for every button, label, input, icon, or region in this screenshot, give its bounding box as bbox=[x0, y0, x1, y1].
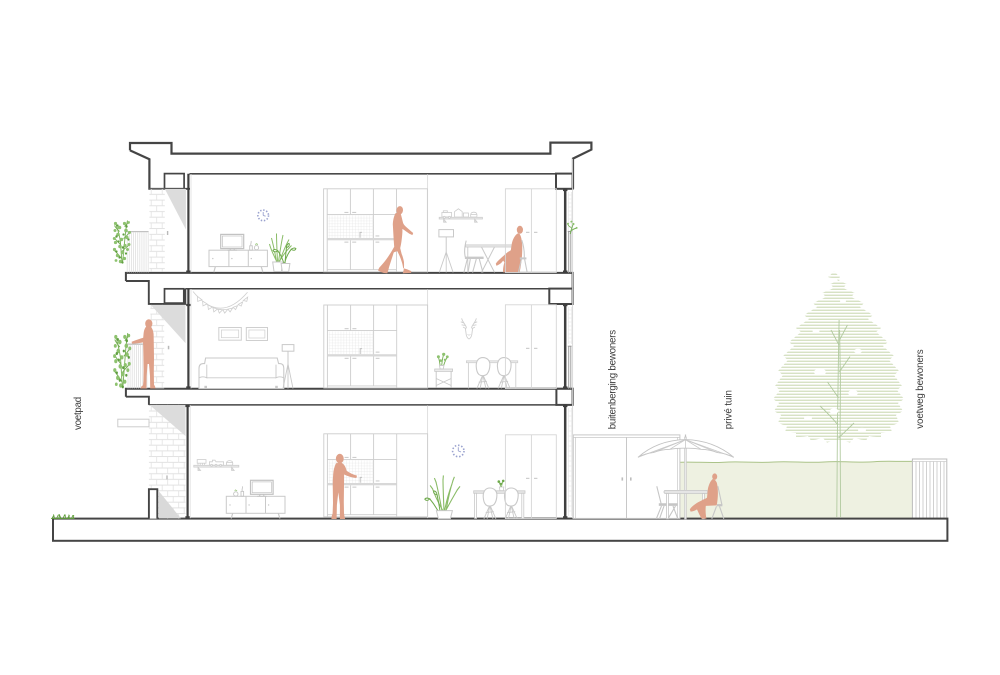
svg-text:privé tuin: privé tuin bbox=[724, 390, 735, 429]
svg-text:buitenberging bewoners: buitenberging bewoners bbox=[608, 330, 619, 430]
svg-text:voetpad: voetpad bbox=[73, 397, 84, 430]
svg-text:voetweg bewoners: voetweg bewoners bbox=[915, 349, 926, 428]
